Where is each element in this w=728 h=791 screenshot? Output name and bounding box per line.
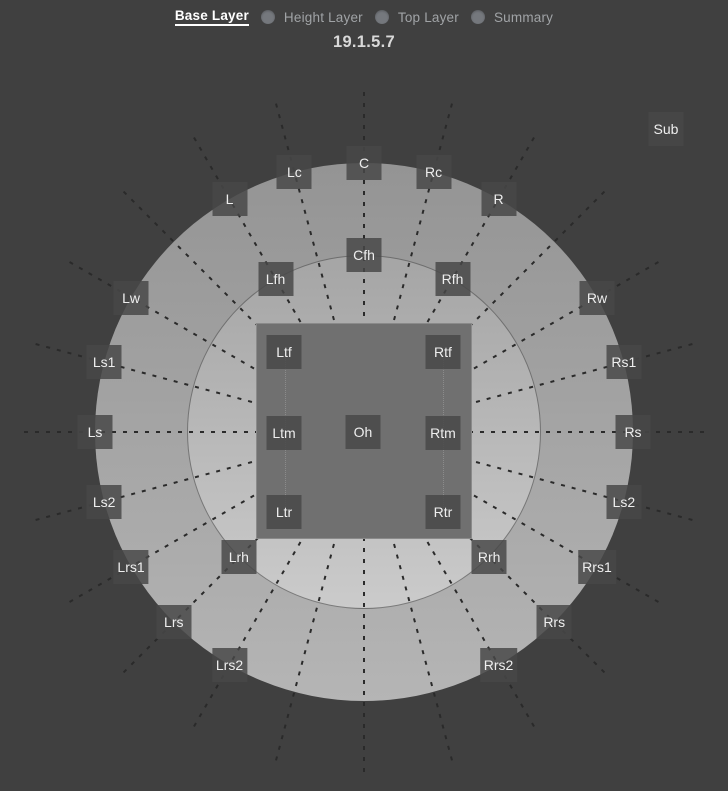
speaker-r: R [481,182,516,216]
speaker-sub: Sub [649,112,684,146]
speaker-rrs: Rrs [537,605,572,639]
speaker-oh: Oh [346,415,381,449]
speaker-ltr: Ltr [267,495,302,529]
speaker-ltf: Ltf [267,335,302,369]
speaker-ls2-left: Ls2 [87,485,122,519]
speaker-layout-screen: Base Layer Height Layer Top Layer Summar… [0,0,728,791]
tab-radio-icon [471,10,485,24]
speaker-cfh: Cfh [347,238,382,272]
tab-top-layer[interactable]: Top Layer [375,10,459,25]
speaker-rrs1: Rrs1 [578,550,616,584]
speaker-ls1: Ls1 [87,345,122,379]
speaker-rtm: Rtm [426,416,461,450]
speaker-rrh: Rrh [472,540,507,574]
speaker-lrs: Lrs [156,605,191,639]
speaker-lfh: Lfh [258,262,293,296]
speaker-lw: Lw [114,281,149,315]
tab-base-layer-label: Base Layer [175,8,249,26]
speaker-rtf: Rtf [426,335,461,369]
tab-summary[interactable]: Summary [471,10,553,25]
tab-radio-icon [261,10,275,24]
speaker-lrh: Lrh [221,540,256,574]
layer-tab-bar: Base Layer Height Layer Top Layer Summar… [0,0,728,52]
speaker-rrs2: Rrs2 [480,648,518,682]
tab-radio-icon [375,10,389,24]
speaker-rc: Rc [416,155,451,189]
speaker-ls: Ls [78,415,113,449]
speaker-ls2-right: Ls2 [606,485,641,519]
speaker-rtr: Rtr [426,495,461,529]
speaker-rs1: Rs1 [606,345,641,379]
layer-tabs: Base Layer Height Layer Top Layer Summar… [0,0,728,26]
tab-height-layer-label: Height Layer [284,10,363,25]
speaker-lrs1: Lrs1 [113,550,148,584]
speaker-lrs2: Lrs2 [212,648,247,682]
speaker-lc: Lc [277,155,312,189]
channel-config-label: 19.1.5.7 [0,33,728,52]
speaker-l: L [212,182,247,216]
tab-height-layer[interactable]: Height Layer [261,10,363,25]
speaker-ltm: Ltm [267,416,302,450]
tab-base-layer[interactable]: Base Layer [175,8,249,26]
tab-summary-label: Summary [494,10,553,25]
speaker-rs: Rs [616,415,651,449]
tab-top-layer-label: Top Layer [398,10,459,25]
speaker-rw: Rw [579,281,614,315]
speaker-c: C [347,146,382,180]
speaker-diagram: CRcRRwRs1RsLs2Rrs1RrsRrs2Lrs2LrsLrs1Ls2L… [0,0,728,791]
speaker-rfh: Rfh [435,262,470,296]
